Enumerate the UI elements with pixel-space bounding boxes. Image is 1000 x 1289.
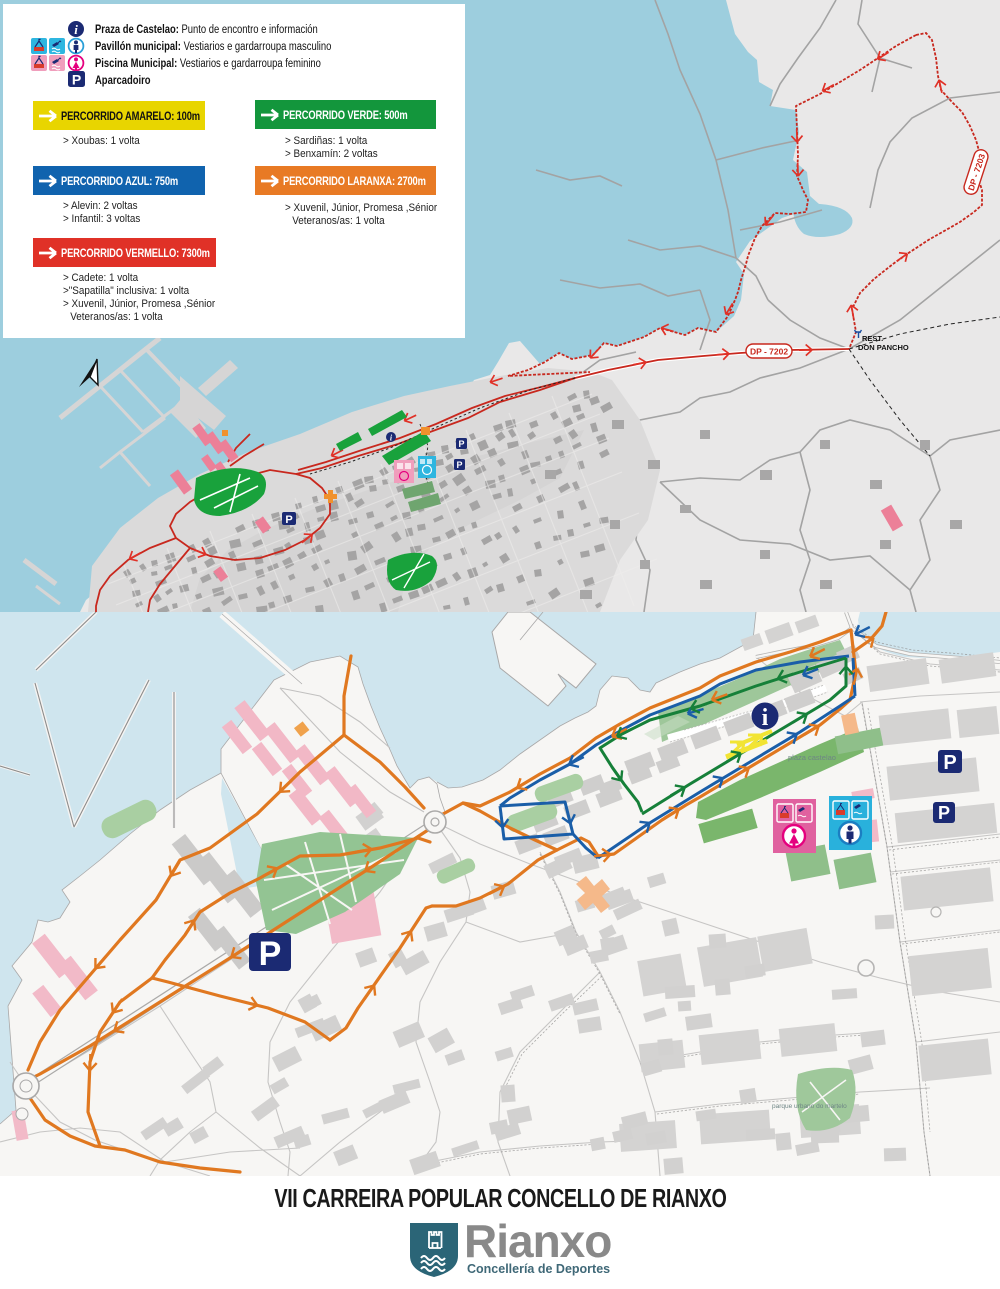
svg-text:P: P <box>285 514 292 526</box>
svg-text:P: P <box>259 935 282 973</box>
svg-text:i: i <box>74 22 78 37</box>
svg-text:parque urbano do martelo: parque urbano do martelo <box>772 1103 847 1110</box>
svg-text:P: P <box>938 803 950 823</box>
svg-text:P: P <box>456 460 462 470</box>
svg-text:plaza castelao: plaza castelao <box>788 753 836 762</box>
svg-text:P: P <box>943 752 956 774</box>
svg-text:DP - 7202: DP - 7202 <box>750 347 788 357</box>
svg-text:P: P <box>72 72 81 88</box>
svg-text:DON PANCHO: DON PANCHO <box>858 343 909 352</box>
svg-text:i: i <box>762 705 769 731</box>
svg-text:P: P <box>458 439 464 449</box>
svg-text:REST.: REST. <box>862 334 883 343</box>
